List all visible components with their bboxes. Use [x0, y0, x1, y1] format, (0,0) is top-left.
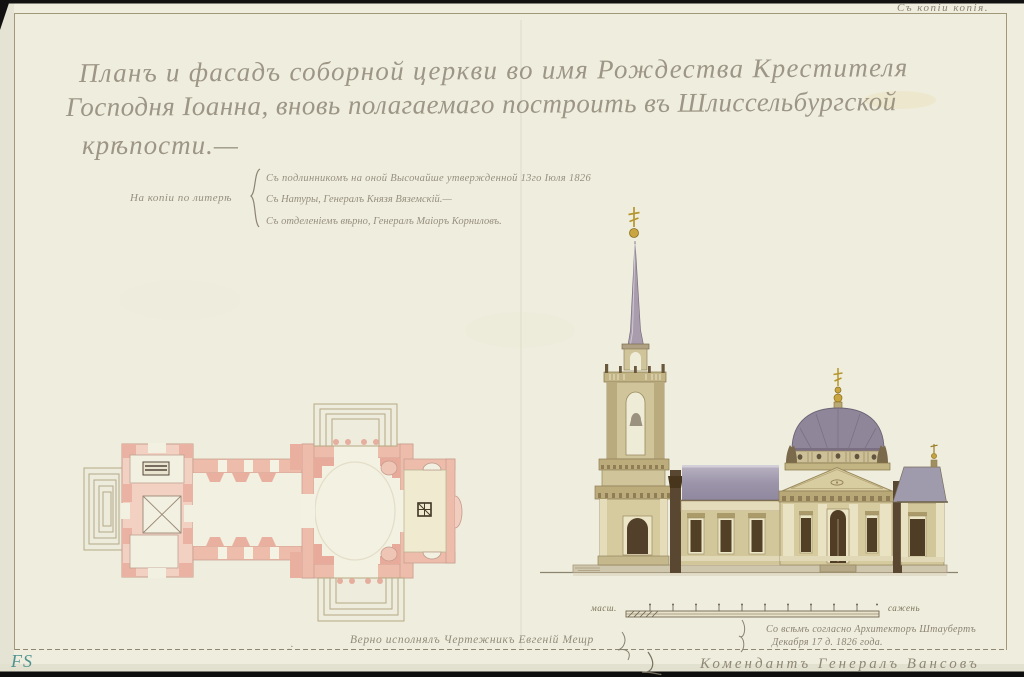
- svg-text:На копіи по литерѣ: На копіи по литерѣ: [129, 192, 232, 204]
- svg-text:Планъ и фасадъ соборной церкви: Планъ и фасадъ соборной церкви во имя Ро…: [78, 52, 909, 88]
- svg-text:.·: .·: [288, 642, 293, 653]
- svg-text:Съ отделеніемъ вѣрно, Генералъ: Съ отделеніемъ вѣрно, Генералъ Маіоръ Ко…: [266, 216, 502, 227]
- svg-text:Господня Іоанна, вновь полагае: Господня Іоанна, вновь полагаемаго постр…: [65, 86, 897, 122]
- svg-text:сажень: сажень: [888, 603, 920, 613]
- svg-text:Декабря 17 д. 1826 года.: Декабря 17 д. 1826 года.: [771, 637, 883, 648]
- svg-text:Комендантъ Генералъ Вансовъ: Комендантъ Генералъ Вансовъ: [699, 656, 980, 672]
- svg-text:масш.: масш.: [590, 603, 617, 613]
- svg-text:Съ подлинникомъ на оной Высоча: Съ подлинникомъ на оной Высочайше утверж…: [266, 173, 591, 184]
- svg-text:Съ копіи копія.: Съ копіи копія.: [897, 2, 989, 14]
- svg-text:FS: FS: [10, 651, 33, 671]
- svg-text:Со всѣмъ согласно Архитекторъ: Со всѣмъ согласно Архитекторъ Штаубертъ: [766, 624, 976, 635]
- svg-text:Съ Натуры, Генералъ Князя Вязе: Съ Натуры, Генералъ Князя Вяземскій.—: [266, 194, 452, 205]
- svg-text:крѣпости.—: крѣпости.—: [82, 130, 239, 160]
- svg-text:Верно исполнялъ Чертежникъ Евг: Верно исполнялъ Чертежникъ Евгеній Мещр: [350, 633, 594, 646]
